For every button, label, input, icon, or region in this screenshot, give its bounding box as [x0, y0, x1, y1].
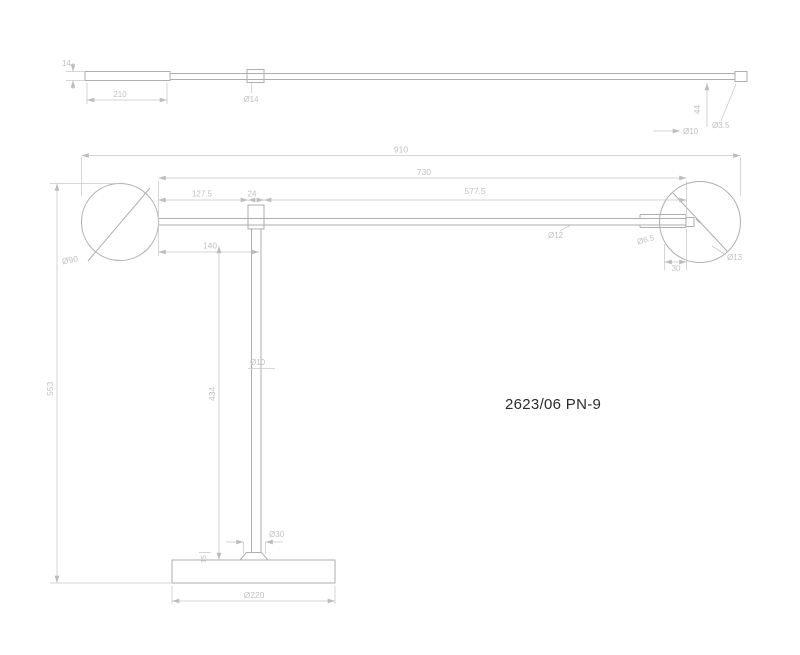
dim-overall-width: 910: [394, 145, 408, 155]
dim-end-height: 14: [62, 59, 71, 68]
dim-cap-height: 15: [201, 555, 208, 563]
dim-head-hole-diameter: Ø13: [727, 253, 743, 262]
top-collar: [247, 70, 264, 83]
dim-socket-diameter: Ø6.5: [636, 233, 656, 246]
top-view: 14 210 Ø14 44 Ø3.5 Ø10: [62, 59, 747, 136]
dim-tube-diameter: Ø10: [683, 127, 699, 136]
dim-base-diameter: Ø220: [244, 590, 265, 600]
technical-drawing: 14 210 Ø14 44 Ø3.5 Ø10: [0, 0, 800, 655]
front-view-dimensions: 910 730 127.5 24 577.5 Ø90 Ø12 140: [45, 145, 743, 605]
dim-collar-to-tip: 577.5: [464, 186, 486, 196]
dim-socket-length: 30: [672, 264, 681, 273]
post-base-cap: [240, 553, 268, 561]
right-shade-diagonal: [673, 193, 727, 251]
dim-post-height: 434: [207, 387, 217, 401]
drawing-sheet: 14 210 Ø14 44 Ø3.5 Ø10: [0, 0, 800, 655]
top-view-geometry: [85, 70, 747, 83]
base-plate: [172, 560, 335, 583]
dim-head-offset: 140: [203, 241, 217, 251]
model-number: 2623/06 PN-9: [505, 396, 601, 413]
dim-arm-span: 730: [417, 167, 431, 177]
left-shade-diagonal: [88, 188, 150, 261]
dim-hole-diameter: Ø3.5: [712, 121, 730, 130]
dim-arm-diameter: Ø12: [548, 231, 564, 240]
dim-post-diameter: Ø10: [250, 358, 266, 367]
dim-end-drop: 44: [693, 105, 702, 114]
left-shade-circle: [82, 184, 159, 261]
top-view-dimensions: 14 210 Ø14 44 Ø3.5 Ø10: [62, 59, 736, 136]
dim-collar-diameter: Ø14: [243, 95, 259, 104]
dim-shade-to-collar: 127.5: [192, 190, 213, 199]
dim-overall-height: 553: [45, 382, 55, 396]
grip-section: [85, 72, 170, 81]
front-view: 910 730 127.5 24 577.5 Ø90 Ø12 140: [45, 145, 743, 605]
dim-shade-diameter: Ø90: [61, 254, 79, 267]
dim-cap-diameter: Ø30: [269, 530, 285, 539]
dim-collar-width: 24: [248, 190, 257, 199]
dim-grip-length: 210: [113, 90, 127, 99]
arm-end-cap: [735, 72, 747, 82]
